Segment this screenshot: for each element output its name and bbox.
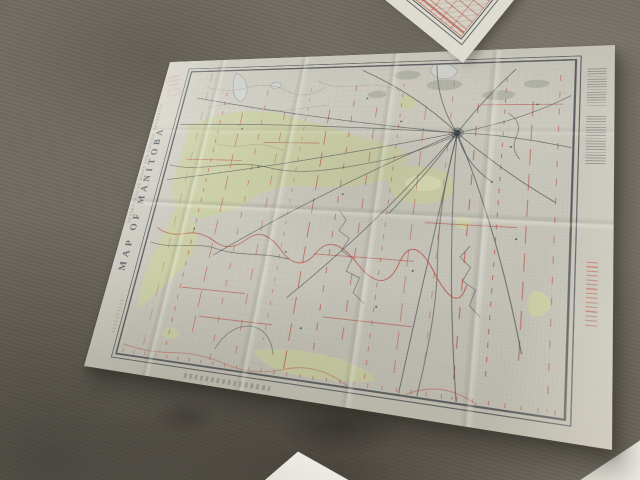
- margin-note-block: [587, 68, 607, 105]
- map-interior: [116, 58, 578, 426]
- margin-red-note: [585, 262, 598, 329]
- red-ink-stamp: [165, 72, 182, 99]
- photo-scene: MAP OF MANITOBA DEPARTMENT OF MINES AND …: [0, 0, 640, 480]
- margin-note-block: [585, 116, 606, 167]
